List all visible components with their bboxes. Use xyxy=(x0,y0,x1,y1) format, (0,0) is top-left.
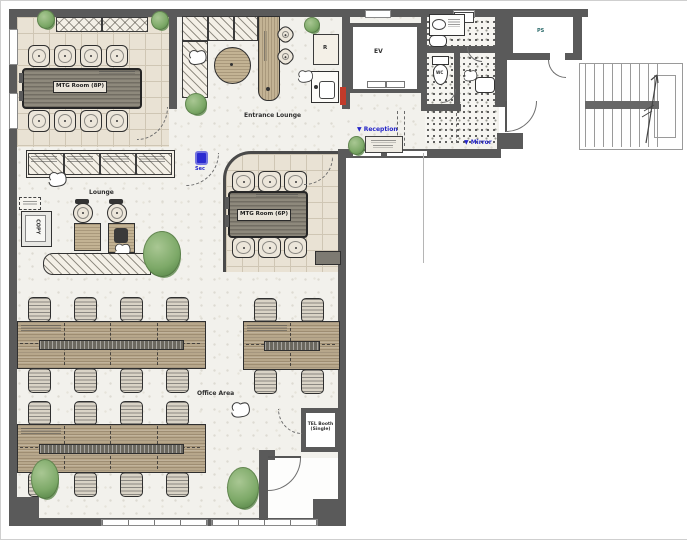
dimension-text xyxy=(256,194,298,197)
slab-edge-line xyxy=(423,153,424,263)
office-chair xyxy=(166,472,189,497)
office-chair xyxy=(74,368,97,393)
office-chair xyxy=(254,369,277,394)
sign-text xyxy=(373,145,393,148)
mtg8-tv xyxy=(19,91,23,101)
wall-genkan-left xyxy=(259,450,268,520)
shredder-text xyxy=(23,201,37,205)
wc-toilet-upper xyxy=(429,35,447,47)
chair xyxy=(106,45,128,67)
wall-corner-bottom-left xyxy=(9,497,39,526)
office-chair xyxy=(166,297,189,322)
person-figure xyxy=(185,47,209,74)
plant xyxy=(348,136,365,155)
cabinet-text xyxy=(139,156,165,162)
wc-label: WC xyxy=(436,71,443,75)
wall-hall-left2 xyxy=(497,133,523,149)
room-label-mtg6: MTG Room (6P) xyxy=(237,209,291,221)
chair xyxy=(232,237,255,258)
wall-ps-bottom xyxy=(504,53,550,60)
wall-left xyxy=(9,9,17,526)
lounge-counter xyxy=(234,16,258,41)
console-cabinet xyxy=(315,251,341,265)
office-chair xyxy=(74,401,97,426)
mtg6-tv xyxy=(225,215,229,227)
door-arc-ps xyxy=(548,60,566,78)
wall-hall-left xyxy=(499,58,507,103)
person-figure xyxy=(227,399,253,427)
plant xyxy=(304,17,320,33)
mtg6-tv xyxy=(225,197,229,209)
wall-mtg8-right xyxy=(169,9,177,109)
plant xyxy=(31,459,59,499)
mirror-label: ▼ Mirror xyxy=(464,139,492,146)
door-arc-entry xyxy=(506,101,537,132)
wall-ps-right xyxy=(573,11,582,58)
glass-partition xyxy=(456,113,458,143)
fire-alarm xyxy=(340,87,346,105)
tel-booth-interior: TEL Booth (Single) xyxy=(306,413,335,447)
mtg8-tv xyxy=(19,73,23,83)
office-chair xyxy=(301,369,324,394)
office-chair xyxy=(120,368,143,393)
wall-wc-low-h xyxy=(421,104,461,111)
coffee-chair-seat xyxy=(73,203,93,223)
reception-sign xyxy=(365,136,403,153)
person-figure xyxy=(45,169,69,196)
shredder xyxy=(19,197,41,210)
office-chair xyxy=(28,368,51,393)
stairs-up-arrow xyxy=(616,65,666,147)
bench xyxy=(43,253,151,275)
office-chair xyxy=(166,368,189,393)
chair xyxy=(106,110,128,132)
ev-label: EV xyxy=(374,49,383,56)
cabinet-text xyxy=(31,156,57,162)
plant xyxy=(227,467,259,509)
cabinet-text xyxy=(103,156,129,162)
lounge-counter xyxy=(208,16,234,41)
wall-ps-bottom2 xyxy=(565,53,582,60)
round-table-center xyxy=(230,63,233,66)
office-chair xyxy=(301,298,324,323)
chair xyxy=(28,110,50,132)
office-chair xyxy=(166,401,189,426)
reception-label: ▼ Reception xyxy=(357,126,398,133)
office-chair xyxy=(120,297,143,322)
plant xyxy=(185,93,207,115)
fridge: R xyxy=(313,34,339,65)
side-table xyxy=(74,223,101,251)
office-chair xyxy=(28,401,51,426)
wall-wc-mid-v xyxy=(454,53,460,109)
chair xyxy=(232,171,255,192)
copy-label: COPY xyxy=(34,219,40,234)
cable-tray xyxy=(264,341,320,351)
window-bottom-2 xyxy=(211,519,318,526)
plant xyxy=(151,11,169,30)
window-bottom-1 xyxy=(101,519,208,526)
ps-label: PS xyxy=(537,29,544,35)
office-chair xyxy=(120,472,143,497)
wc-basin xyxy=(432,19,446,30)
dimension-text xyxy=(247,325,287,332)
room-label-office-area: Office Area xyxy=(197,391,234,398)
fridge-label: R xyxy=(323,45,327,51)
chair xyxy=(80,45,102,67)
plant xyxy=(143,231,181,277)
planter-box xyxy=(56,17,102,32)
high-counter-leg xyxy=(266,87,270,91)
window-left-1 xyxy=(9,29,18,65)
office-chair xyxy=(28,297,51,322)
office-chair xyxy=(74,472,97,497)
chair xyxy=(28,45,50,67)
coffee-chair-seat xyxy=(107,203,127,223)
lounge-counter xyxy=(182,16,208,41)
window-left-2 xyxy=(9,93,18,129)
cable-tray xyxy=(39,444,184,454)
planter-box xyxy=(102,17,148,32)
person-figure xyxy=(295,67,315,91)
sink-basin xyxy=(319,81,335,99)
ev-door xyxy=(367,81,386,88)
wall-wc-mid-h xyxy=(421,46,497,53)
wall-wc-left xyxy=(421,9,427,111)
room-label-mtg8: MTG Room (8P) xyxy=(53,81,107,93)
dimension-text xyxy=(264,31,267,61)
dimension-text xyxy=(21,325,61,332)
tel-booth-label-2: (Single) xyxy=(306,428,335,433)
office-chair xyxy=(254,298,277,323)
storage-cabinet xyxy=(100,153,136,175)
room-label-entrance-lounge: Entrance Lounge xyxy=(244,113,301,120)
sign-text xyxy=(371,140,396,143)
cabinet-text xyxy=(67,156,93,162)
chair xyxy=(54,110,76,132)
storage-cabinet xyxy=(136,153,172,175)
dimension-text xyxy=(448,19,460,27)
chair xyxy=(284,237,307,258)
office-chair xyxy=(120,401,143,426)
floor-plan: MTG Room (8P) R Entrance Lounge EV WC xyxy=(0,0,687,540)
office-chair xyxy=(74,297,97,322)
room-label-lounge: Lounge xyxy=(89,190,114,197)
chair xyxy=(258,171,281,192)
person-figure xyxy=(461,67,479,89)
storage-cabinet xyxy=(64,153,100,175)
dimension-text xyxy=(21,428,61,435)
glass-partition xyxy=(404,111,406,146)
plant xyxy=(37,10,55,29)
chair xyxy=(54,45,76,67)
cable-tray xyxy=(39,340,184,350)
dimension-text xyxy=(99,71,135,74)
wall-ps-left xyxy=(498,9,513,59)
chair xyxy=(258,237,281,258)
wall-notch-1 xyxy=(365,10,391,18)
ev-door xyxy=(386,81,405,88)
chair xyxy=(80,110,102,132)
copy-machine: COPY xyxy=(21,211,52,247)
